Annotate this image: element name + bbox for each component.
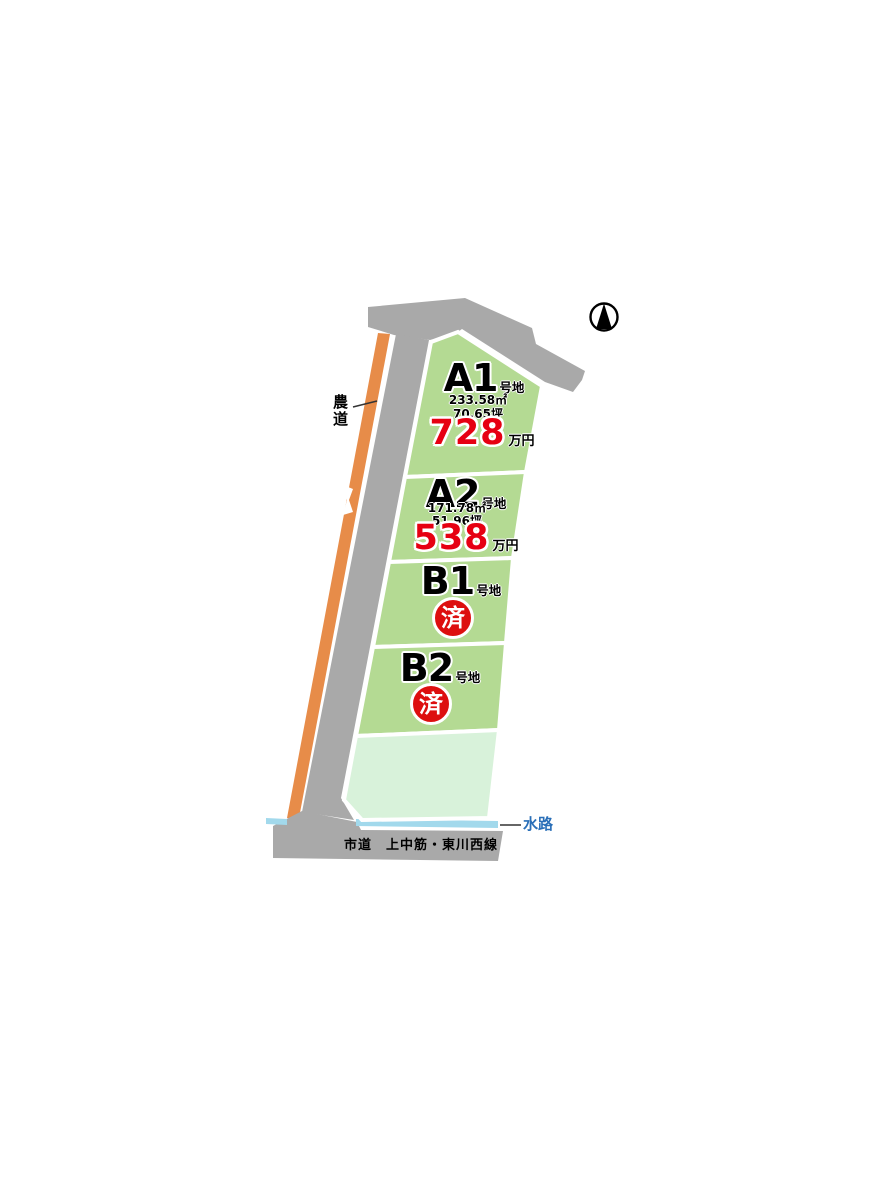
plot-a2-price-unit: 万円 xyxy=(493,540,519,553)
plot-a1-title: A1 号地 xyxy=(444,359,525,397)
lot-map-canvas: A1 号地 233.58㎡ 70.65坪 728 万円 A2 号地 171.78… xyxy=(0,0,885,1182)
plot-a1-label: A1 xyxy=(444,359,498,397)
plot-a1-area-sqm: 233.58㎡ xyxy=(449,394,507,406)
plot-b2-suffix: 号地 xyxy=(455,672,480,685)
plot-a1-price: 728 万円 xyxy=(429,416,534,451)
waterway-label: 水路 xyxy=(523,817,553,832)
plot-a2-price-number: 538 xyxy=(413,521,489,556)
plot-b1-label: B1 xyxy=(421,562,474,600)
remainder-area-shape xyxy=(344,730,499,820)
plot-b2-sold-label: 済 xyxy=(419,692,443,716)
plot-a2-price: 538 万円 xyxy=(413,521,518,556)
plot-b1-sold-label: 済 xyxy=(441,606,465,630)
north-compass-icon xyxy=(591,304,618,331)
city-road-label: 市道 上中筋・東川西線 xyxy=(344,839,498,852)
plot-b2-sold-badge: 済 xyxy=(410,683,452,725)
plot-b1-sold-badge: 済 xyxy=(432,597,474,639)
plot-b1-title: B1 号地 xyxy=(421,562,501,600)
plot-b1-suffix: 号地 xyxy=(476,585,501,598)
farm-road-label: 農道 xyxy=(332,394,347,428)
plot-a2-area-sqm: 171.78㎡ xyxy=(428,502,486,514)
waterway-left-segment xyxy=(266,818,287,825)
plot-b2-title: B2 号地 xyxy=(400,649,480,687)
plot-a1-price-unit: 万円 xyxy=(509,435,535,448)
plot-b2-label: B2 xyxy=(400,649,453,687)
plot-a1-price-number: 728 xyxy=(429,416,505,451)
